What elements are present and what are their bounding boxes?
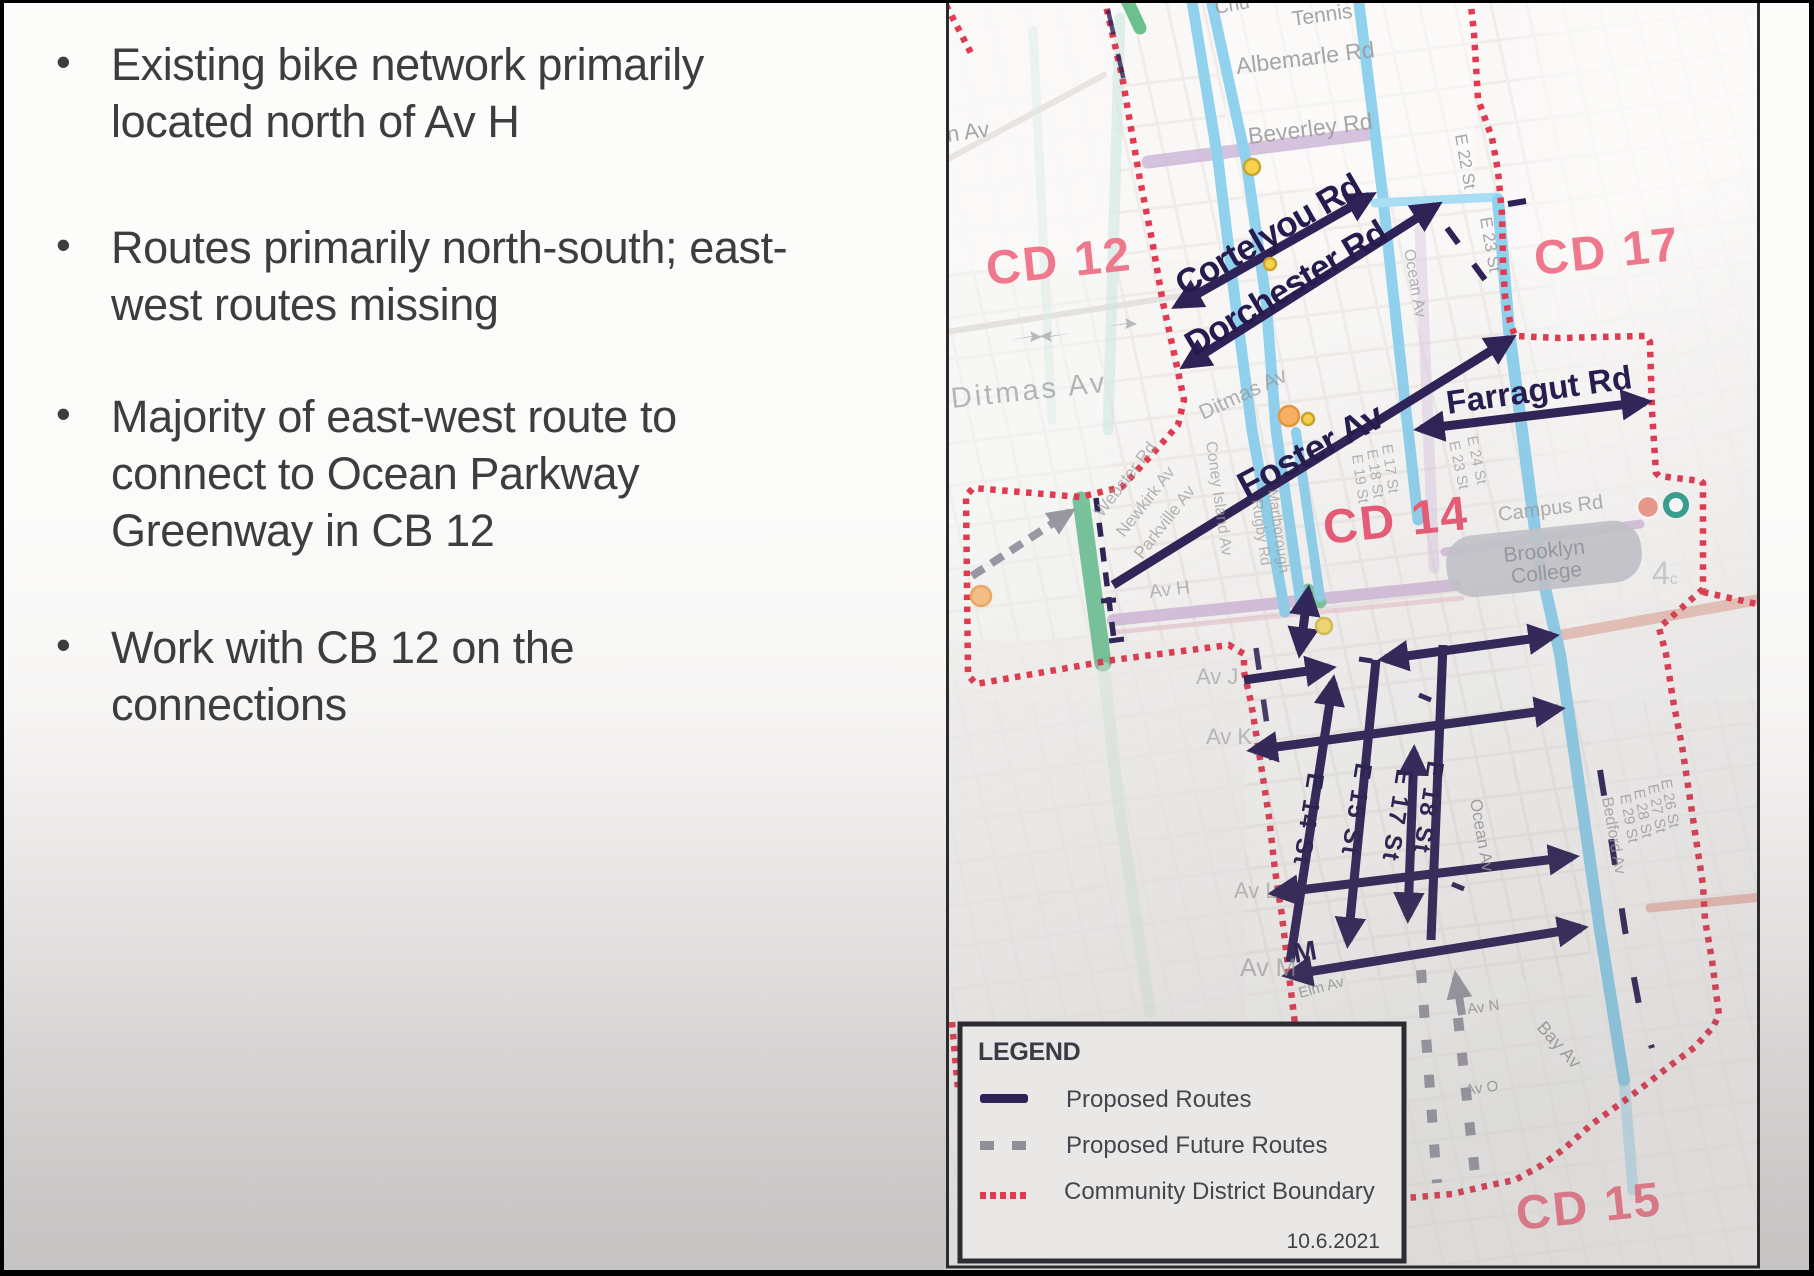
svg-text:LEGEND: LEGEND bbox=[978, 1038, 1080, 1066]
svg-text:Proposed Future Routes: Proposed Future Routes bbox=[1066, 1132, 1327, 1159]
svg-text:10.6.2021: 10.6.2021 bbox=[1287, 1230, 1380, 1253]
svg-text:Proposed Routes: Proposed Routes bbox=[1066, 1086, 1251, 1113]
svg-text:Community District Boundary: Community District Boundary bbox=[1064, 1178, 1375, 1205]
